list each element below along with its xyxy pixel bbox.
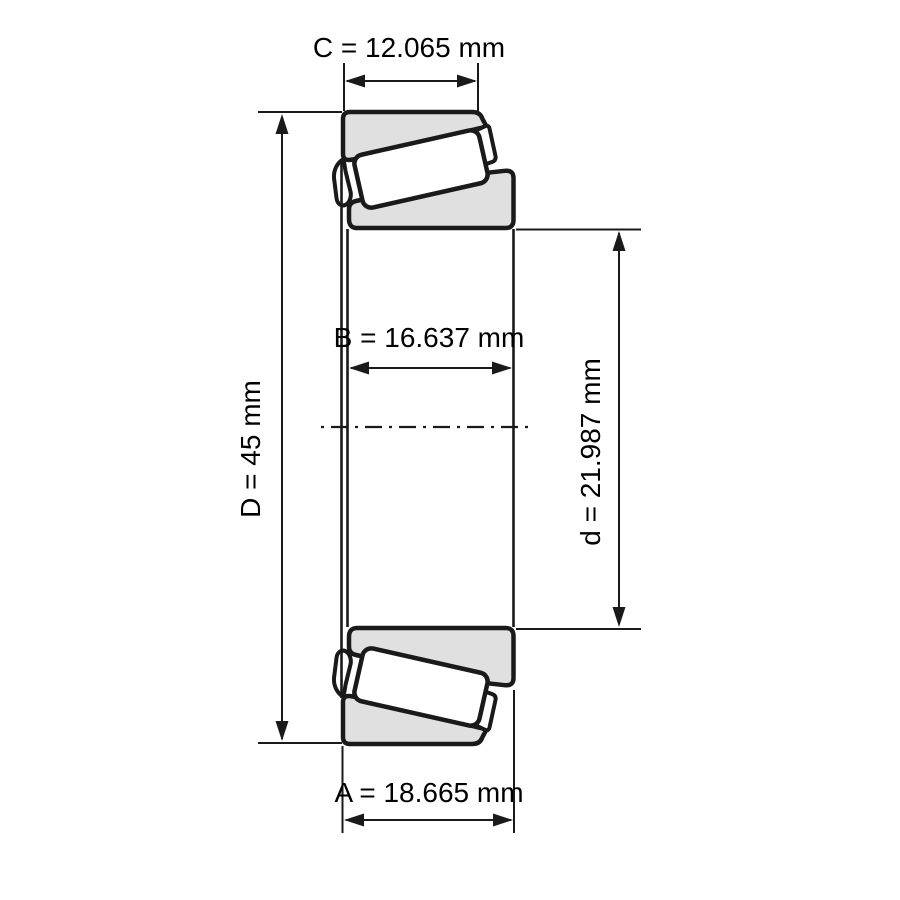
dimension-A-arrow-left (344, 814, 364, 827)
dimension-D-arrow-top (276, 114, 289, 134)
dimension-d: d = 21.987 mm (516, 230, 641, 630)
upper-half-section (334, 112, 514, 228)
dimension-B-arrow-right (492, 362, 512, 375)
lower-half-section (334, 628, 514, 744)
dimension-D-label: D = 45 mm (235, 380, 266, 518)
dimension-C: C = 12.065 mm (313, 32, 505, 111)
dimension-B-arrow-left (349, 362, 369, 375)
bearing-dimension-drawing: C = 12.065 mm D = 45 mm B = 16.637 mm d … (0, 0, 900, 900)
dimension-A-label: A = 18.665 mm (334, 777, 523, 808)
dimension-B-label: B = 16.637 mm (334, 322, 525, 353)
dimension-A-arrow-right (493, 814, 513, 827)
bore-and-face-edges (342, 160, 514, 698)
drawing-canvas: C = 12.065 mm D = 45 mm B = 16.637 mm d … (0, 0, 900, 900)
dimension-d-arrow-top (613, 231, 626, 251)
dimension-B: B = 16.637 mm (334, 322, 525, 375)
dimension-d-arrow-bottom (613, 607, 626, 627)
dimension-D-arrow-bottom (276, 721, 289, 741)
dimension-C-arrow-right (457, 75, 477, 88)
dimension-C-arrow-left (345, 75, 365, 88)
dimension-C-label: C = 12.065 mm (313, 32, 505, 63)
dimension-d-label: d = 21.987 mm (575, 358, 606, 546)
dimension-D: D = 45 mm (235, 112, 342, 743)
